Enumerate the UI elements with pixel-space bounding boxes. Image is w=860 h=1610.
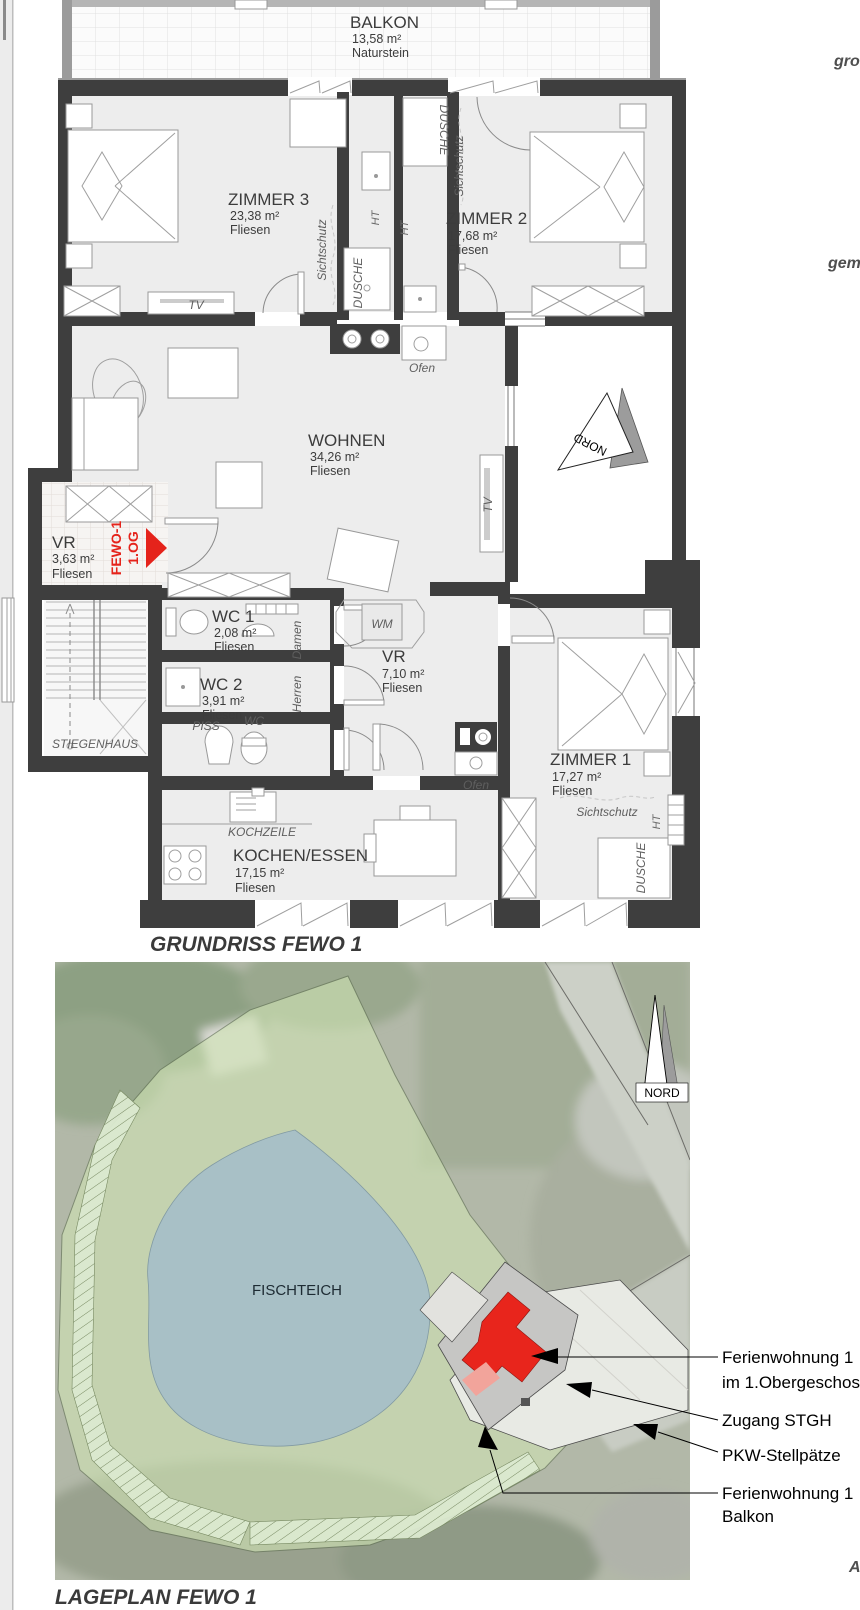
site-plan: FISCHTEICH NORD	[10, 940, 860, 1610]
annotation-balkon-line2: Balkon	[722, 1507, 774, 1526]
kochzeile-label: KOCHZEILE	[228, 825, 297, 839]
wc2-label: WC 2 3,91 m² Fliesen	[200, 675, 244, 722]
floor-plan: STIEGENHAUS TV D	[2, 0, 700, 956]
ofen-label-bottom: Ofen	[463, 778, 489, 792]
zimmer1-floor: Fliesen	[552, 784, 592, 798]
wohnen-area: 34,26 m²	[310, 450, 359, 464]
aerial-photo: FISCHTEICH NORD	[10, 940, 720, 1610]
zimmer1-name: ZIMMER 1	[550, 750, 631, 769]
wc-small-label: WC	[244, 714, 264, 728]
balkon-area: 13,58 m²	[352, 32, 401, 46]
site-plan-title: LAGEPLAN FEWO 1	[55, 1586, 257, 1609]
wc2-floor: Fliesen	[202, 708, 242, 722]
zimmer2-area: 17,68 m²	[448, 229, 497, 243]
margin-note-top: gro	[833, 53, 860, 70]
zimmer3-floor: Fliesen	[230, 223, 270, 237]
plan-page: STIEGENHAUS TV D	[0, 0, 860, 1610]
annotation-fewo-og-line1: Ferienwohnung 1	[722, 1348, 853, 1367]
vr-entry-name: VR	[52, 533, 76, 552]
ht-label-z1: HT	[651, 813, 663, 829]
wm-label: WM	[371, 617, 392, 631]
vr-entry-floor: Fliesen	[52, 567, 92, 581]
tv-label-wohnen: TV	[481, 496, 495, 512]
wc1-area: 2,08 m²	[214, 626, 256, 640]
zimmer2-floor: Fliesen	[448, 243, 488, 257]
damen-label: Damen	[290, 620, 304, 659]
zimmer1-area: 17,27 m²	[552, 770, 601, 784]
dusche-label-z1: DUSCHE	[634, 842, 648, 894]
balkon-floor: Naturstein	[352, 46, 409, 60]
ht-label-left: HT	[370, 209, 382, 225]
ofen-label-top: Ofen	[409, 361, 435, 375]
building-detail	[521, 1398, 530, 1406]
stiegenhaus-label: STIEGENHAUS	[52, 737, 138, 751]
zimmer3-name: ZIMMER 3	[228, 190, 309, 209]
kochen-floor: Fliesen	[235, 881, 275, 895]
vr-hall-area: 7,10 m²	[382, 667, 424, 681]
wc2-name: WC 2	[200, 675, 243, 694]
margin-note-bottom: A	[848, 1559, 860, 1576]
page-left-edge	[0, 0, 14, 1610]
annotation-fewo-og-line2: im 1.Obergeschoss	[722, 1373, 860, 1392]
zimmer3-area: 23,38 m²	[230, 209, 279, 223]
wohnen-floor: Fliesen	[310, 464, 350, 478]
herren-label: Herren	[290, 675, 304, 712]
site-annotations: Ferienwohnung 1 im 1.Obergeschoss Zugang…	[722, 1348, 860, 1526]
wc1-name: WC 1	[212, 607, 255, 626]
floor-plan-title: GRUNDRISS FEWO 1	[150, 933, 362, 956]
sichtschutz-label-z1: Sichtschutz	[576, 805, 637, 819]
zimmer2-name: ZIMMER 2	[446, 209, 527, 228]
margin-note-middle: gem	[827, 255, 860, 272]
tv-label-z3: TV	[188, 298, 204, 312]
wc2-area: 3,91 m²	[202, 694, 244, 708]
kochen-area: 17,15 m²	[235, 866, 284, 880]
pond-label: FISCHTEICH	[252, 1282, 342, 1299]
siteplan-north-label: NORD	[644, 1086, 680, 1100]
kochen-name: KOCHEN/ESSEN	[233, 846, 368, 865]
vr-hall-name: VR	[382, 647, 406, 666]
annotation-pkw: PKW-Stellpätze	[722, 1446, 841, 1465]
dusche-label-left: DUSCHE	[351, 257, 365, 309]
wohnen-name: WOHNEN	[308, 431, 385, 450]
annotation-balkon-line1: Ferienwohnung 1	[722, 1484, 853, 1503]
wc1-floor: Fliesen	[214, 640, 254, 654]
unit-marker-line2: 1.OG	[125, 531, 141, 565]
vr-hall-floor: Fliesen	[382, 681, 422, 695]
ht-label-right: HT	[399, 219, 411, 235]
vr-entry-area: 3,63 m²	[52, 552, 94, 566]
annotation-zugang: Zugang STGH	[722, 1411, 832, 1430]
dusche-label-top: DUSCHE	[437, 105, 451, 157]
sichtschutz-label-z3: Sichtschutz	[315, 219, 329, 280]
sichtschutz-label-z2: Sichtschutz	[452, 135, 466, 196]
wc1-label: WC 1 2,08 m² Fliesen	[212, 607, 256, 654]
plan-drawing: STIEGENHAUS TV D	[0, 0, 860, 1610]
unit-marker-line1: FEWO-1	[108, 521, 124, 576]
balkon-name: BALKON	[350, 13, 419, 32]
